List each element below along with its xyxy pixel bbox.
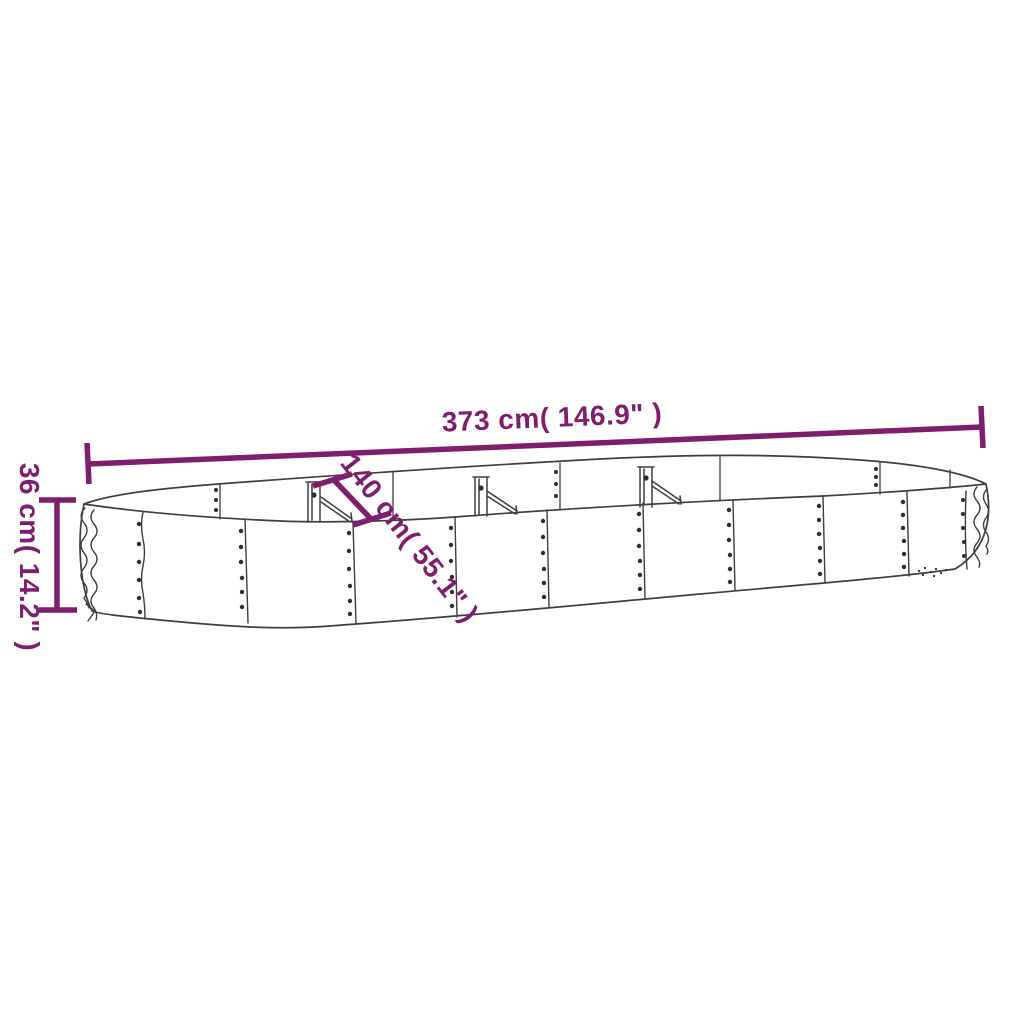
rivet-column [727, 508, 732, 584]
dimension-end-cap [87, 443, 89, 484]
rivet-column [214, 488, 218, 512]
dimension-end-cap [981, 406, 983, 448]
rivet-column [239, 529, 244, 609]
rivet-column [554, 470, 558, 498]
panel-seam [142, 512, 146, 619]
dimension-diagram: 373 cm( 146.9" ) 140 cm( 55.1" ) 36 cm( … [0, 0, 1024, 1024]
height-dimension-label: 36 cm( 14.2" ) [13, 463, 45, 651]
rivet-column [137, 522, 142, 614]
panel-seam [547, 510, 549, 607]
rivet-column [637, 512, 642, 591]
planter-line-drawing [0, 0, 1024, 1024]
panel-seam [245, 519, 248, 623]
support-post [473, 477, 517, 516]
rivet-column [901, 500, 906, 569]
panel-seam [643, 503, 645, 598]
rivet-column [541, 519, 546, 599]
planter-rim-front-edge [84, 484, 986, 522]
rivet-column [817, 504, 822, 576]
panel-seam [823, 496, 825, 582]
rivet-column [347, 531, 352, 616]
corrugated-end-right [965, 487, 988, 569]
rivet-column [874, 467, 878, 487]
panel-seam [353, 523, 356, 624]
panel-seam [907, 492, 909, 576]
panel-seams-back [220, 457, 950, 520]
dimension-annotations [39, 406, 983, 610]
planter-outline [80, 455, 989, 627]
planter-silhouette [80, 455, 989, 627]
panel-seam [733, 500, 735, 590]
rivet-dots [137, 467, 966, 616]
support-post [638, 467, 681, 507]
